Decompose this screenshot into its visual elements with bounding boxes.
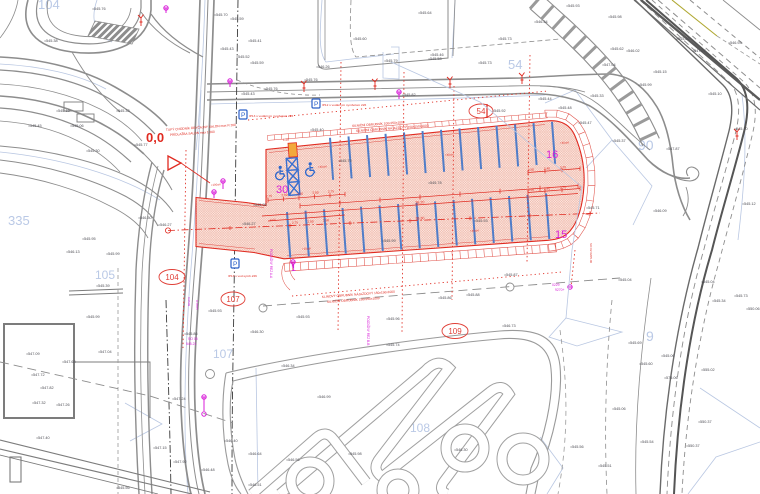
svg-text:545.76: 545.76 (266, 87, 278, 91)
svg-text:2.40: 2.40 (544, 166, 551, 170)
svg-text:+40cm: +40cm (318, 164, 328, 169)
svg-text:545.33: 545.33 (592, 94, 604, 98)
svg-text:547.04: 547.04 (100, 350, 112, 354)
svg-text:54: 54 (508, 57, 522, 72)
svg-text:545.48: 545.48 (560, 106, 572, 110)
svg-text:545.60: 545.60 (355, 37, 367, 41)
svg-text:38.30: 38.30 (415, 216, 424, 221)
svg-text:54: 54 (477, 107, 486, 116)
svg-text:545.12: 545.12 (744, 202, 756, 206)
svg-text:545.39: 545.39 (98, 284, 110, 288)
svg-text:545.99: 545.99 (108, 252, 120, 256)
svg-text:545.98: 545.98 (610, 15, 622, 19)
svg-text:545.93: 545.93 (476, 219, 488, 223)
svg-text:545.64: 545.64 (420, 11, 432, 15)
svg-text:545.41: 545.41 (250, 39, 262, 43)
svg-text:547.40: 547.40 (38, 436, 50, 440)
svg-text:547.68: 547.68 (64, 360, 76, 364)
svg-text:547.15: 547.15 (155, 446, 167, 450)
svg-text:3.50: 3.50 (528, 188, 535, 192)
svg-text:545.06: 545.06 (72, 124, 84, 128)
svg-text:545.59: 545.59 (232, 17, 244, 21)
svg-text:545.47: 545.47 (580, 121, 592, 125)
svg-text:545.82: 545.82 (404, 93, 416, 97)
svg-text:546.27: 546.27 (244, 222, 256, 226)
svg-text:546.30: 546.30 (140, 216, 152, 220)
svg-text:547.72: 547.72 (33, 373, 45, 377)
svg-text:2.75: 2.75 (292, 221, 299, 225)
svg-text:547.92: 547.92 (175, 460, 187, 464)
svg-text:547.82: 547.82 (42, 386, 54, 390)
svg-text:16: 16 (546, 149, 558, 161)
svg-text:2.75: 2.75 (328, 189, 335, 193)
svg-text:545.98: 545.98 (350, 452, 362, 456)
svg-text:546.99: 546.99 (319, 395, 331, 399)
svg-text:546.64: 546.64 (250, 452, 262, 456)
svg-text:546.56: 546.56 (288, 458, 300, 462)
svg-text:546.27: 546.27 (160, 223, 172, 227)
svg-text:0.0509: 0.0509 (187, 297, 191, 307)
svg-text:545.54: 545.54 (642, 440, 654, 444)
svg-text:545.40: 545.40 (312, 128, 324, 132)
svg-text:545.04: 545.04 (703, 280, 715, 284)
svg-text:9: 9 (646, 328, 654, 344)
svg-text:545.99: 545.99 (384, 239, 396, 243)
svg-text:546.34: 546.34 (536, 20, 548, 24)
svg-text:+40cm: +40cm (560, 140, 570, 145)
svg-text:2.40: 2.40 (544, 186, 551, 190)
svg-text:545.79: 545.79 (386, 59, 398, 63)
svg-text:545.92: 545.92 (494, 109, 506, 113)
svg-text:545.99: 545.99 (640, 83, 652, 87)
svg-text:547.87: 547.87 (668, 147, 680, 151)
svg-text:2.75: 2.75 (560, 185, 567, 189)
svg-text:545.95: 545.95 (84, 237, 96, 241)
svg-text:545.86: 545.86 (186, 332, 198, 336)
svg-text:0,0: 0,0 (146, 130, 164, 145)
svg-text:1.28: 1.28 (283, 138, 290, 142)
svg-text:550.37: 550.37 (688, 444, 700, 448)
svg-text:IP13 s vod.symb.226: IP13 s vod.symb.226 (228, 274, 257, 278)
svg-text:546.30: 546.30 (456, 448, 468, 452)
svg-text:545.45: 545.45 (30, 124, 42, 128)
svg-text:547.09: 547.09 (28, 352, 40, 356)
svg-text:575.06: 575.06 (666, 376, 678, 380)
svg-text:545.69: 545.69 (630, 341, 642, 345)
svg-text:545.93: 545.93 (298, 315, 310, 319)
svg-text:3.50: 3.50 (528, 168, 535, 172)
svg-text:545.52: 545.52 (238, 55, 250, 59)
svg-text:2.50: 2.50 (307, 219, 314, 223)
svg-text:545.88: 545.88 (468, 293, 480, 297)
svg-text:547.26: 547.26 (58, 403, 70, 407)
svg-text:546.30: 546.30 (252, 330, 264, 334)
svg-text:2.75: 2.75 (266, 194, 273, 198)
svg-text:545.18: 545.18 (58, 109, 70, 113)
svg-text:547.07: 547.07 (694, 49, 706, 53)
svg-text:545.76: 545.76 (94, 7, 106, 11)
svg-text:+15cm: +15cm (302, 246, 312, 251)
svg-text:545.93: 545.93 (210, 309, 222, 313)
svg-text:545.51: 545.51 (600, 464, 612, 468)
svg-text:545.10: 545.10 (736, 127, 748, 131)
svg-text:2.50: 2.50 (297, 192, 304, 196)
svg-text:107: 107 (226, 295, 240, 304)
svg-text:545.04: 545.04 (620, 278, 632, 282)
svg-text:15: 15 (555, 229, 567, 241)
svg-text:D.0505: D.0505 (195, 300, 199, 310)
svg-text:545.33: 545.33 (118, 109, 130, 113)
svg-text:555.02: 555.02 (703, 368, 715, 372)
svg-text:545.96: 545.96 (388, 317, 400, 321)
svg-text:545.76: 545.76 (306, 78, 318, 82)
svg-text:545.21: 545.21 (186, 342, 196, 346)
svg-text:545.99: 545.99 (88, 315, 100, 319)
svg-text:IP13 s vodárnym symbolom 226: IP13 s vodárnym symbolom 226 (249, 114, 293, 118)
svg-text:546.40: 546.40 (226, 439, 238, 443)
svg-text:545.43: 545.43 (243, 92, 255, 96)
svg-text:P: P (241, 112, 245, 119)
svg-text:546.48: 546.48 (203, 468, 215, 472)
svg-text:P: P (233, 261, 237, 268)
svg-text:545.62: 545.62 (612, 47, 624, 51)
svg-text:4.00: 4.00 (270, 218, 276, 222)
svg-text:545.56: 545.56 (572, 445, 584, 449)
svg-text:545.44: 545.44 (540, 97, 552, 101)
svg-text:545.10: 545.10 (710, 92, 722, 96)
svg-text:547.32: 547.32 (34, 401, 46, 405)
svg-text:545.06: 545.06 (614, 407, 626, 411)
svg-text:+40cm: +40cm (445, 152, 455, 157)
svg-text:546.02: 546.02 (628, 49, 640, 53)
svg-text:546.09: 546.09 (655, 209, 667, 213)
svg-text:105: 105 (95, 268, 115, 282)
svg-text:335: 335 (8, 213, 30, 228)
svg-text:104: 104 (165, 273, 179, 282)
svg-text:2.50: 2.50 (323, 218, 330, 222)
svg-text:+40cm: +40cm (470, 228, 480, 233)
svg-text:545.83: 545.83 (678, 37, 690, 41)
svg-text:545.74: 545.74 (388, 343, 400, 347)
svg-text:545.73: 545.73 (736, 294, 748, 298)
svg-text:546.26: 546.26 (318, 65, 330, 69)
svg-text:547.24: 547.24 (174, 397, 186, 401)
svg-text:545.58: 545.58 (430, 57, 442, 61)
svg-text:107: 107 (213, 347, 233, 361)
svg-text:545.87: 545.87 (506, 273, 518, 277)
svg-text:546.13: 546.13 (68, 250, 80, 254)
svg-text:545.73: 545.73 (500, 37, 512, 41)
svg-text:545.30: 545.30 (88, 149, 100, 153)
svg-text:+100cm: +100cm (211, 182, 222, 187)
svg-text:9270+: 9270+ (555, 288, 565, 292)
svg-text:POZDĺŽNY REZ A-A: POZDĺŽNY REZ A-A (269, 249, 274, 279)
svg-text:545.15: 545.15 (655, 70, 667, 74)
svg-text:545.93: 545.93 (568, 4, 580, 8)
svg-text:545.73: 545.73 (480, 61, 492, 65)
svg-text:545.71: 545.71 (588, 206, 600, 210)
svg-text:545.06: 545.06 (663, 354, 675, 358)
svg-text:36.20: 36.20 (415, 200, 424, 205)
svg-text:545.59: 545.59 (252, 61, 264, 65)
svg-text:546.73: 546.73 (504, 324, 516, 328)
svg-text:545.77: 545.77 (136, 143, 148, 147)
svg-text:109: 109 (448, 327, 462, 336)
svg-text:0229: 0229 (552, 283, 560, 287)
svg-text:545.79: 545.79 (340, 159, 352, 163)
svg-text:550.06: 550.06 (748, 307, 760, 311)
svg-text:SO 02 0205.00: SO 02 0205.00 (589, 243, 593, 264)
svg-text:545.86: 545.86 (440, 296, 452, 300)
svg-text:SO 05: SO 05 (188, 337, 198, 341)
svg-text:546.93: 546.93 (730, 41, 742, 45)
svg-text:545.95: 545.95 (255, 203, 267, 207)
svg-text:545.38: 545.38 (46, 39, 58, 43)
svg-text:547.04: 547.04 (604, 63, 616, 67)
svg-text:2.50: 2.50 (312, 190, 319, 194)
svg-text:545.60: 545.60 (641, 362, 653, 366)
svg-text:104: 104 (38, 0, 60, 12)
svg-text:545.70: 545.70 (216, 13, 228, 17)
svg-text:546.51: 546.51 (250, 483, 262, 487)
svg-text:550.37: 550.37 (700, 420, 712, 424)
svg-text:POZDĺŽNY REZ B-B: POZDĺŽNY REZ B-B (366, 316, 371, 345)
svg-text:P: P (314, 101, 318, 108)
svg-text:IP12 s vodárnym symbolom 226: IP12 s vodárnym symbolom 226 (322, 103, 366, 107)
svg-text:545.56: 545.56 (118, 486, 130, 490)
svg-text:545.37: 545.37 (614, 139, 626, 143)
svg-text:30: 30 (276, 184, 288, 196)
svg-text:545.43: 545.43 (222, 47, 234, 51)
svg-text:545.34: 545.34 (714, 299, 726, 303)
svg-text:545.78: 545.78 (430, 181, 442, 185)
svg-text:546.34: 546.34 (283, 364, 295, 368)
